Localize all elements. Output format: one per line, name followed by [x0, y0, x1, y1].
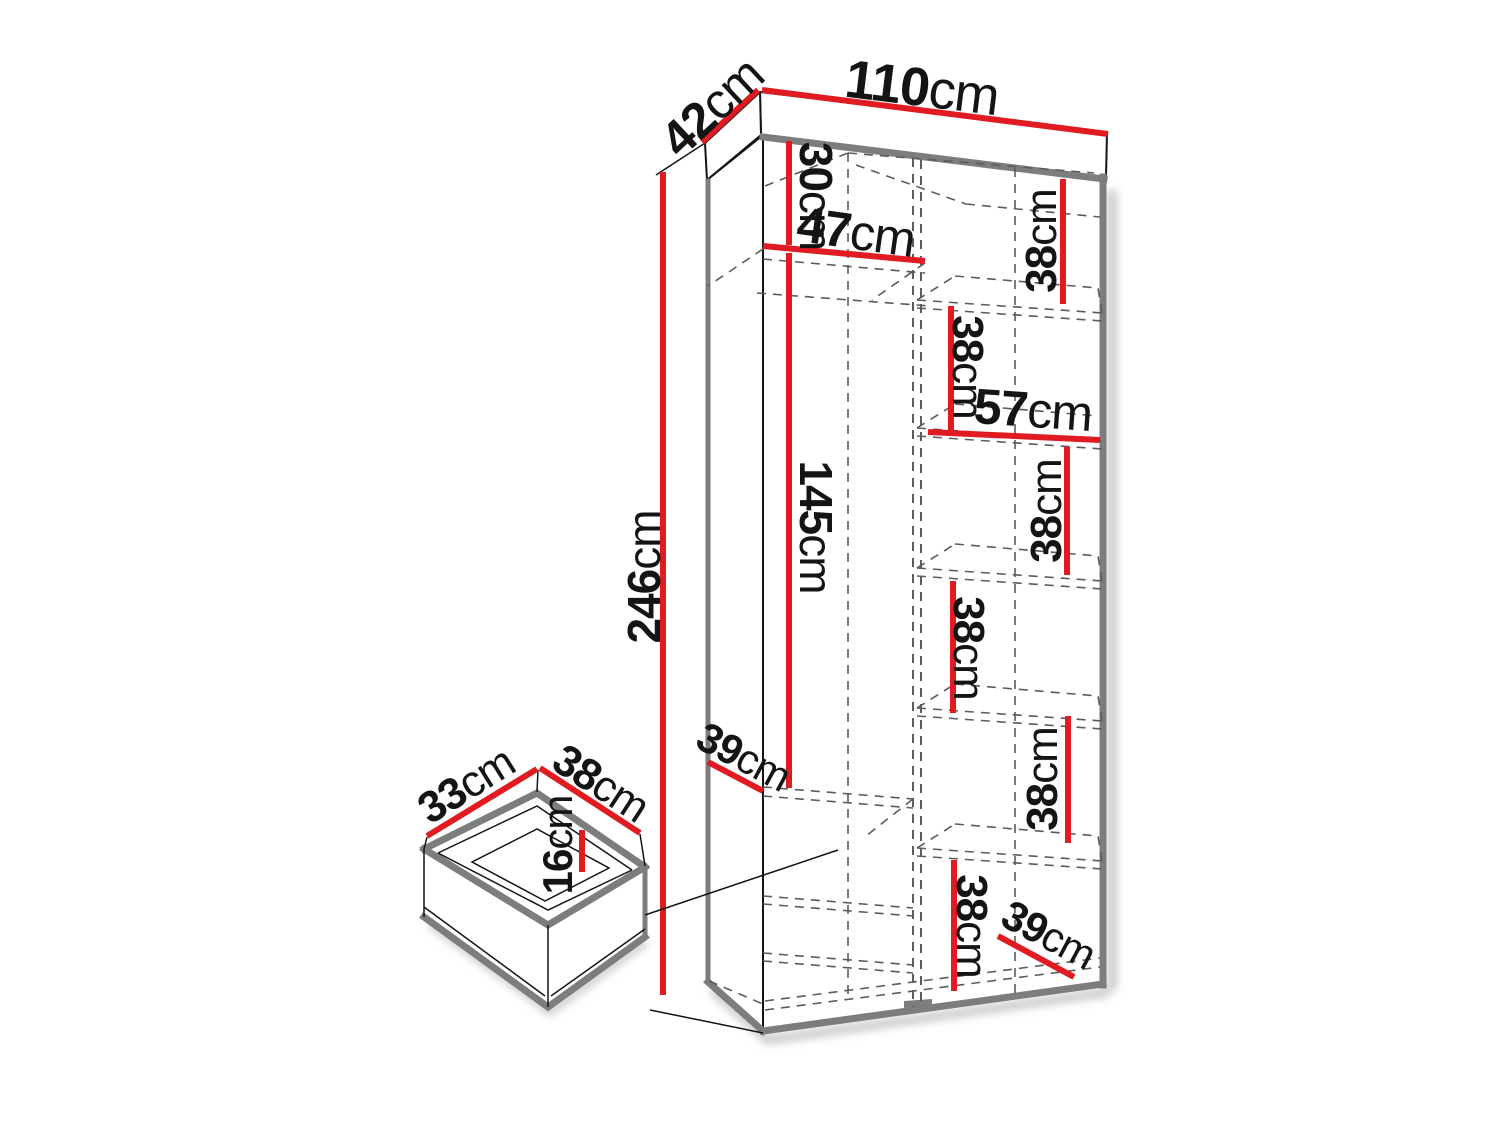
left-side-panel — [707, 135, 763, 1032]
label-shelf-gap-1: 38cm — [1017, 189, 1066, 293]
diagram-canvas: 110cm 42cm 246cm 30cm 47cm 145cm 38cm 38… — [0, 0, 1500, 1125]
furniture-dimension-diagram: 110cm 42cm 246cm 30cm 47cm 145cm 38cm 38… — [0, 0, 1500, 1125]
label-wardrobe-height: 246cm — [618, 510, 670, 643]
label-right-shelf-width: 57cm — [972, 378, 1094, 442]
label-hanging-space-height: 145cm — [790, 460, 842, 593]
label-shelf-gap-6: 38cm — [948, 874, 997, 978]
label-shelf-gap-3: 38cm — [1022, 459, 1071, 563]
wardrobe-drawing: 110cm 42cm 246cm 30cm 47cm 145cm 38cm 38… — [618, 46, 1112, 1040]
label-drawer-height: 16cm — [534, 796, 581, 895]
label-shelf-gap-5: 38cm — [1018, 727, 1067, 831]
label-shelf-gap-4: 38cm — [945, 596, 994, 700]
drawer-detail: 33cm 38cm 16cm — [409, 734, 658, 1012]
